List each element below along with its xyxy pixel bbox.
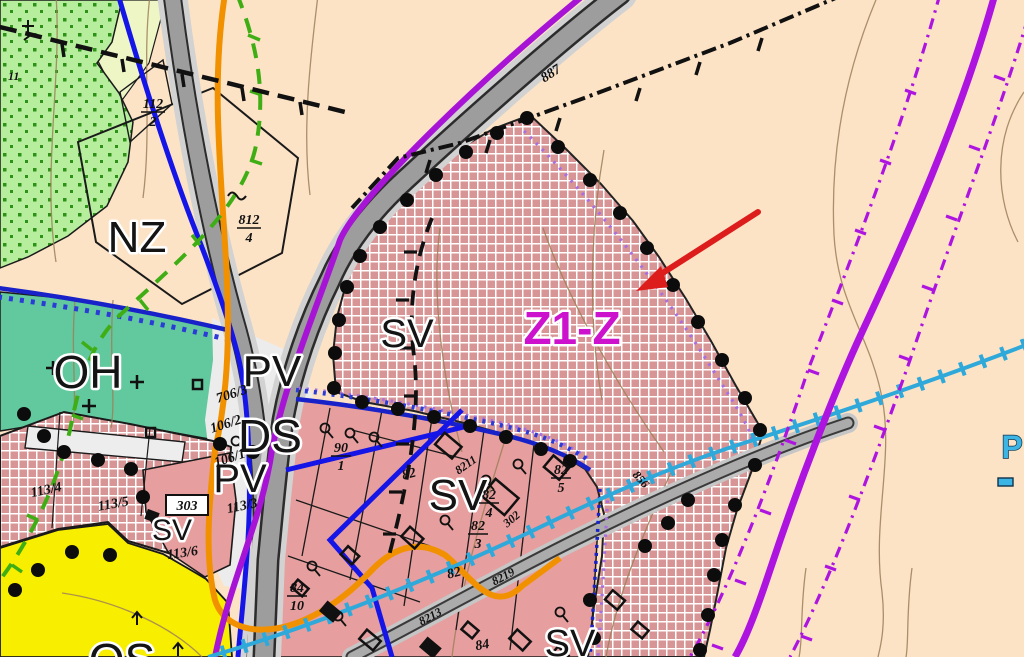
change-area-label-z1z: Z1-Z — [523, 302, 620, 354]
svg-text:112: 112 — [143, 97, 163, 112]
svg-text:84: 84 — [290, 581, 304, 596]
svg-text:812: 812 — [239, 213, 260, 228]
zoning-map[interactable]: NZ OH PV DS PV SV Z1-Z SV SV SV OS P 887… — [0, 0, 1024, 657]
svg-text:82: 82 — [471, 519, 485, 534]
parcel-label-11: 11 — [8, 69, 19, 83]
svg-text:10: 10 — [290, 599, 304, 614]
zone-label-ds: DS — [238, 410, 302, 462]
water-label-p: P — [1001, 429, 1022, 465]
zone-label-sv-upper: SV — [380, 312, 434, 356]
zoning-map-viewport[interactable]: NZ OH PV DS PV SV Z1-Z SV SV SV OS P 887… — [0, 0, 1024, 657]
zone-label-sv-left: SV — [152, 514, 192, 547]
zone-label-oh: OH — [54, 346, 123, 398]
svg-text:82: 82 — [554, 463, 568, 478]
water-label-dash — [998, 478, 1013, 486]
svg-text:3: 3 — [474, 537, 482, 552]
zone-label-sv-central: SV — [429, 471, 488, 520]
svg-text:90: 90 — [334, 441, 348, 456]
zone-label-sv-bottom: SV — [545, 623, 596, 657]
svg-text:1: 1 — [338, 459, 345, 474]
parcel-label-84: 84 — [474, 637, 490, 654]
zone-label-pv-upper: PV — [243, 347, 302, 396]
svg-text:2: 2 — [149, 115, 157, 130]
svg-text:4: 4 — [245, 231, 253, 246]
zone-label-os: OS — [89, 634, 155, 657]
svg-text:4: 4 — [485, 506, 493, 521]
zone-label-nz: NZ — [108, 213, 167, 262]
svg-text:5: 5 — [558, 481, 565, 496]
svg-text:82: 82 — [482, 488, 496, 503]
parcel-label-303: 303 — [176, 499, 198, 514]
